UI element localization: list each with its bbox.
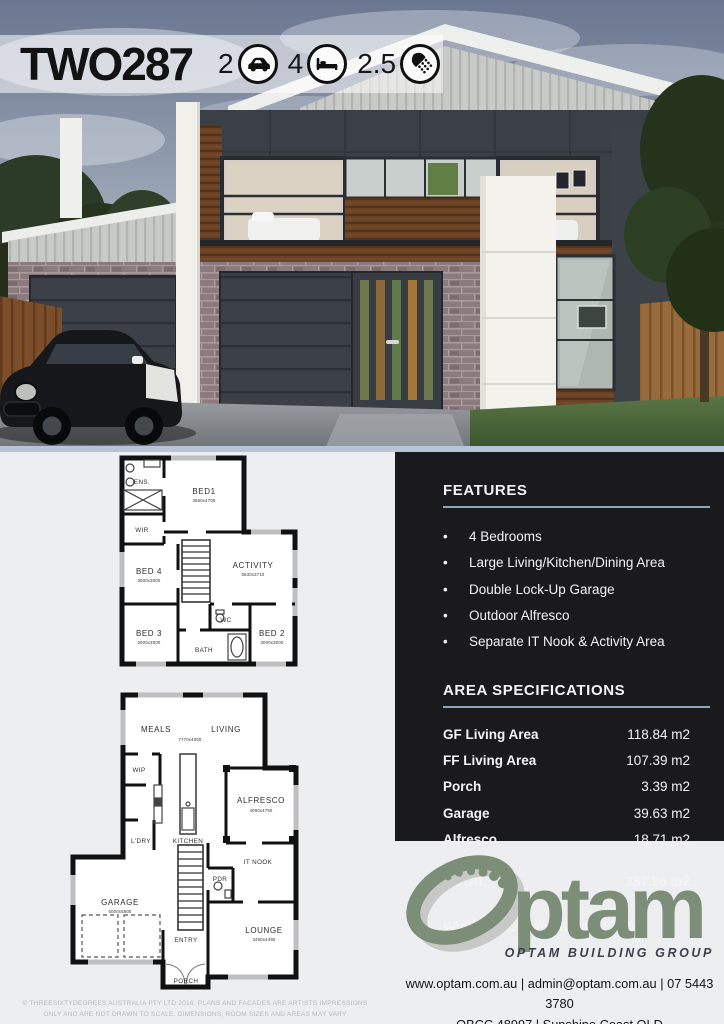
model-name: TWO287 [20,41,192,87]
contact-line-1: www.optam.com.au | admin@optam.com.au | … [395,974,724,1015]
ff-room-bed2: BED 2 [259,629,285,638]
flyer-page: TWO287 2 4 2.5 [0,0,724,1024]
bed-count: 4 [288,48,304,80]
entry-door [344,272,448,423]
area-row: FF Living Area107.39 m2 [443,748,690,774]
lounge-window [556,256,614,418]
contact-info: www.optam.com.au | admin@optam.com.au | … [395,974,724,1024]
stat-cars: 2 [218,44,278,84]
area-label: Garage [443,801,490,827]
ff-room-activity: ACTIVITY [233,561,274,570]
gf-room-living: LIVING [211,725,241,734]
feature-item: •4 Bedrooms [443,524,710,550]
area-value: 118.84 m2 [627,722,690,748]
area-row: GF Living Area118.84 m2 [443,722,690,748]
disclaimer-footer: © THREESIXTYDEGREES AUSTRALIA PTY LTD 20… [6,999,384,1020]
features-heading: FEATURES [443,482,710,499]
gf-room-kitchen: KITCHEN [173,838,203,845]
brand-block: ptam OPTAM BUILDING GROUP www.optam.com.… [395,852,724,1024]
specs-panel: FEATURES •4 Bedrooms •Large Living/Kitch… [395,452,724,841]
bullet-icon: • [443,603,469,629]
ground-floor-plan: MEALS LIVING 7770x4000 WIP L'DRY KITCHEN… [68,690,302,992]
first-floor-plan: ENS. BED1 3650x4700 WIR BED 4 3000x3000 … [116,452,302,671]
features-heading-rule [443,506,710,508]
gf-room-alfresco: ALFRESCO [237,796,285,805]
feature-text: Double Lock-Up Garage [469,577,615,603]
disclaimer-line-1: © THREESIXTYDEGREES AUSTRALIA PTY LTD 20… [6,999,384,1010]
area-row: Porch3.39 m2 [443,774,690,800]
features-list: •4 Bedrooms •Large Living/Kitchen/Dining… [443,524,710,656]
wood-strip-left [197,126,222,246]
ff-room-bed4: BED 4 [136,567,162,576]
entry-path [326,414,464,446]
bullet-icon: • [443,577,469,603]
area-row: Alfresco18.71 m2 [443,827,690,853]
disclaimer-line-2: ONLY AND ARE NOT DRAWN TO SCALE. DIMENSI… [6,1010,384,1021]
shower-icon [400,44,440,84]
area-value: 3.39 m2 [641,774,690,800]
feature-text: Separate IT Nook & Activity Area [469,629,665,655]
car-count: 2 [218,48,234,80]
feature-text: Large Living/Kitchen/Dining Area [469,550,665,576]
bath-count: 2.5 [357,48,396,80]
bullet-icon: • [443,550,469,576]
stat-beds: 4 [288,44,348,84]
feature-item: •Separate IT Nook & Activity Area [443,629,710,655]
area-value: 107.39 m2 [626,748,690,774]
garage-door-centre [220,272,356,416]
car-icon [238,44,278,84]
ff-room-bed1-dim: 3650x4700 [192,498,215,503]
gf-room-lounge: LOUNGE [245,926,282,935]
area-row: Garage39.63 m2 [443,801,690,827]
gf-room-garage: GARAGE [101,898,139,907]
optam-logo: ptam [404,852,716,952]
gf-room-garage-dim: 6000x5800 [108,909,131,914]
feature-text: 4 Bedrooms [469,524,542,550]
rear-white-post [60,118,82,218]
bed-icon [307,44,347,84]
ff-room-bed3: BED 3 [136,629,162,638]
bullet-icon: • [443,524,469,550]
gf-meals-living-dim: 7770x4000 [178,737,201,742]
gf-room-itnook: IT NOOK [244,859,273,866]
ff-room-bed4-dim: 3000x3000 [137,578,160,583]
optam-wordmark: ptam [512,858,702,952]
gf-room-entry: ENTRY [174,937,198,944]
feature-item: •Large Living/Kitchen/Dining Area [443,550,710,576]
bullet-icon: • [443,629,469,655]
area-heading-rule [443,706,710,708]
feature-item: •Outdoor Alfresco [443,603,710,629]
ff-room-activity-dim: 5630x3710 [241,572,264,577]
gf-room-alfresco-dim: 4090x4750 [249,808,272,813]
feature-text: Outdoor Alfresco [469,603,570,629]
ff-room-wir: WIR [135,527,148,534]
title-banner: TWO287 2 4 2.5 [0,35,443,93]
ff-room-wc: WC [220,617,231,624]
gf-room-lounge-dim: 3490x4490 [252,937,275,942]
gf-room-meals: MEALS [141,725,171,734]
ff-room-ens: ENS. [134,479,150,486]
ff-room-bed3-dim: 3000x3000 [137,640,160,645]
gf-room-porch: PORCH [174,978,199,985]
contact-line-2: QBCC 48997 | Sunshine Coast QLD [395,1015,724,1024]
area-label: GF Living Area [443,722,539,748]
bedroom-window-left [222,158,345,246]
feature-item: •Double Lock-Up Garage [443,577,710,603]
area-label: Alfresco [443,827,497,853]
ff-room-bed1: BED1 [192,487,215,496]
ff-room-bath: BATH [195,647,213,654]
gf-room-ldry: L'DRY [131,838,151,845]
area-value: 39.63 m2 [634,801,690,827]
area-heading: AREA SPECIFICATIONS [443,682,710,699]
white-pillar [480,176,556,432]
white-blade-left-shadow [197,102,200,432]
area-value: 18.71 m2 [634,827,690,853]
ff-room-bed2-dim: 3000x3000 [260,640,283,645]
gf-room-wip: WIP [132,767,145,774]
stat-baths: 2.5 [357,44,440,84]
area-label: Porch [443,774,481,800]
stat-icons: 2 4 2.5 [218,44,440,84]
gf-room-pdr: PDR [213,876,228,883]
house-render: TWO287 2 4 2.5 [0,0,724,446]
area-label: FF Living Area [443,748,536,774]
